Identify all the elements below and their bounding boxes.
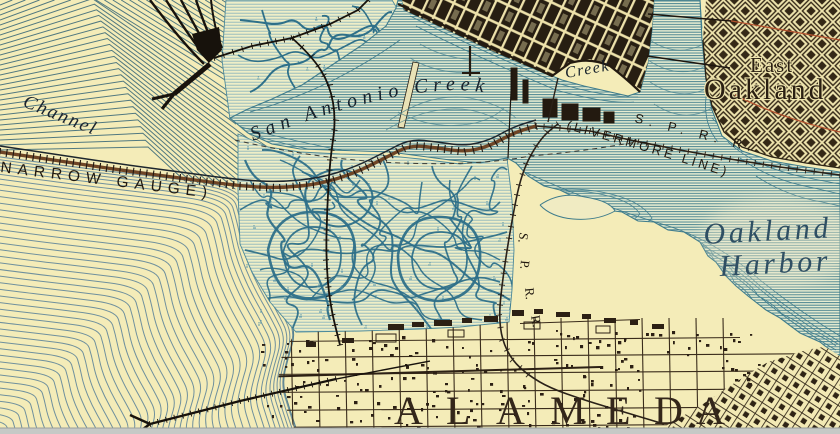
svg-text:D: D (654, 388, 683, 433)
svg-text:Harbor: Harbor (718, 244, 832, 283)
svg-text:Oakland: Oakland (704, 73, 827, 106)
svg-text:M: M (550, 388, 586, 433)
svg-text:A: A (394, 388, 423, 433)
svg-text:E: E (606, 388, 630, 433)
svg-text:P.: P. (517, 260, 533, 270)
svg-text:R.: R. (522, 287, 538, 300)
svg-text:A: A (496, 388, 525, 433)
svg-text:A: A (696, 388, 725, 433)
svg-text:L: L (446, 388, 470, 433)
